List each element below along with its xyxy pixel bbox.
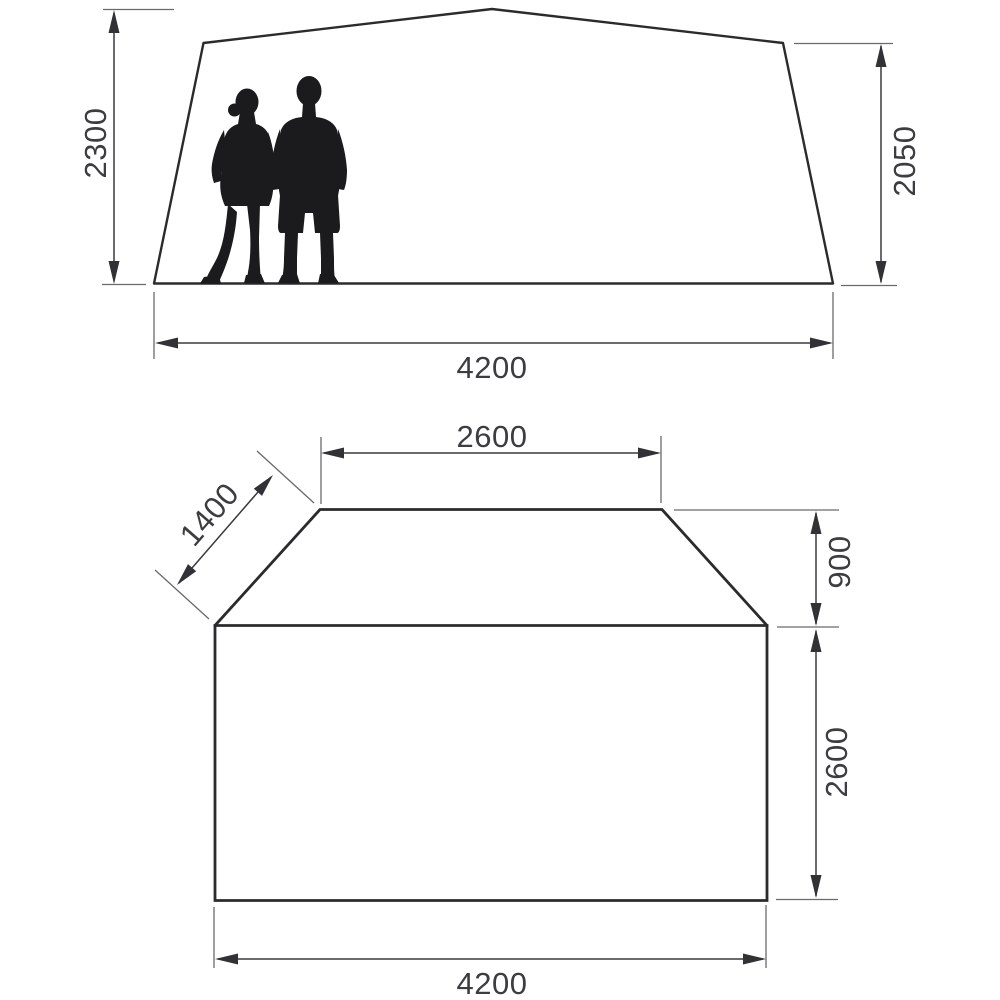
arrowhead-down-icon: [109, 261, 120, 284]
arrowhead-up-icon: [109, 10, 120, 33]
elevation-width-label: 4200: [457, 350, 528, 385]
arrowhead-left-icon: [321, 448, 344, 459]
dimension-main-depth: 2600: [776, 629, 854, 900]
extension-line-top: [257, 451, 314, 503]
arrowhead-up-icon: [811, 629, 822, 652]
dimension-elevation-width: 4200: [154, 292, 833, 385]
diagram-svg: 2300 2050 4200: [0, 0, 1000, 1000]
woman-silhouette: [200, 89, 275, 285]
arrowhead-right-icon: [638, 448, 661, 459]
side-elevation-view: 2300 2050 4200: [78, 9, 922, 385]
man-silhouette: [271, 76, 347, 284]
arrowhead-right-icon: [743, 954, 766, 965]
floor-plan-outline: [215, 510, 767, 901]
dimension-side-height: 2050: [794, 44, 922, 286]
arrowhead-down-icon: [811, 875, 822, 898]
arrowhead-up-icon: [811, 511, 822, 534]
arrowhead-down-icon: [811, 603, 822, 626]
dimension-plan-width: 4200: [214, 905, 766, 1000]
peak-height-label: 2300: [78, 108, 113, 179]
dimension-peak-height: 2300: [78, 10, 174, 285]
floor-plan-view: 2600 1400 900: [155, 419, 857, 1000]
tent-dimension-diagram: 2300 2050 4200: [0, 0, 1000, 1000]
arrowhead-left-icon: [215, 954, 238, 965]
plan-width-label: 4200: [457, 966, 528, 1000]
main-depth-label: 2600: [819, 727, 854, 798]
arrowhead-left-icon: [155, 338, 178, 349]
side-panel-label: 1400: [173, 476, 246, 553]
front-depth-label: 900: [822, 535, 857, 588]
arrowhead-down-icon: [876, 261, 887, 284]
dimension-front-width: 2600: [321, 419, 661, 504]
arrowhead-up-icon: [876, 44, 887, 67]
side-height-label: 2050: [887, 126, 922, 197]
arrowhead-right-icon: [810, 338, 833, 349]
front-width-label: 2600: [457, 419, 528, 454]
dimension-front-depth: 900: [674, 510, 857, 627]
dimension-side-panel: 1400: [155, 451, 314, 619]
